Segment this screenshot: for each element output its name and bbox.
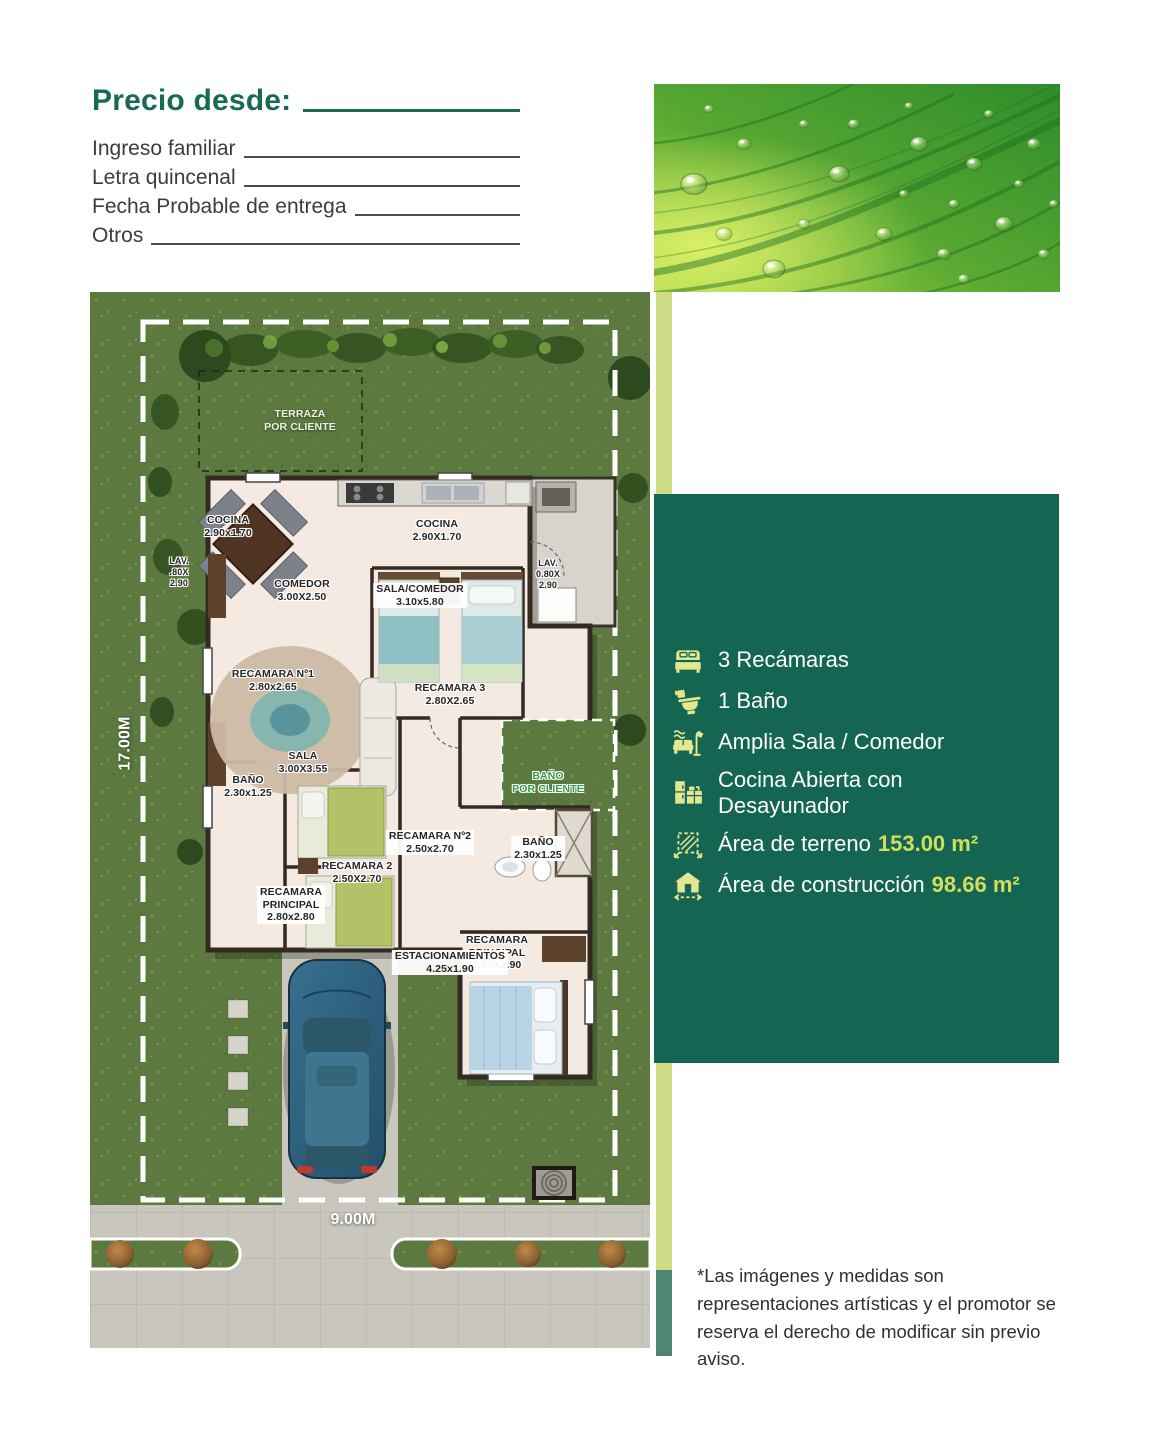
feature-label: Área de construcción (718, 872, 925, 897)
floorplan-label-recamara-2-n: RECAMARA Nº2 2.50x2.70 (386, 830, 474, 855)
floorplan-label-comedor: COMEDOR 3.00X2.50 (274, 578, 330, 603)
floorplan-label-dim-width: 9.00M (331, 1210, 376, 1229)
feature-construccion: Área de construcción98.66 m² (672, 869, 1049, 901)
field-blank-line (151, 243, 520, 245)
floorplan-label-recamara-1: RECAMARA Nº1 2.80x2.65 (232, 668, 314, 693)
construction-area-icon (672, 869, 704, 901)
flyer-page: Precio desde: Ingreso familiar Letra qui… (0, 0, 1152, 1440)
field-blank-line (355, 214, 520, 216)
feature-label: Cocina Abierta con Desayunador (718, 767, 903, 818)
land-area-icon (672, 828, 704, 860)
floorplan-label-lav-right: LAV. 0.80X 2.90 (536, 558, 560, 590)
price-header: Precio desde: Ingreso familiar Letra qui… (92, 84, 520, 248)
feature-sala-comedor: Amplia Sala / Comedor (672, 726, 1049, 758)
bed-icon (672, 644, 704, 676)
sofa-lamp-icon (672, 726, 704, 758)
floorplan-label-lav-left: LAV. .80X 2.90 (169, 556, 188, 588)
features-panel: 3 Recámaras 1 Baño (654, 494, 1059, 1063)
feature-list: 3 Recámaras 1 Baño (672, 644, 1049, 901)
form-field-letra-quincenal: Letra quincenal (92, 161, 520, 190)
field-label: Otros (92, 224, 143, 248)
floorplan-label-sala: SALA 3.00X3.55 (279, 750, 328, 775)
floorplan-label-sala-comedor: SALA/COMEDOR 3.10x5.80 (373, 583, 467, 608)
floorplan-label-terraza: TERRAZA POR CLIENTE (264, 408, 336, 433)
page-title: Precio desde: (92, 84, 291, 118)
feature-label: 1 Baño (718, 688, 788, 713)
field-label: Letra quincenal (92, 166, 236, 190)
floorplan-label-bano-right: BAÑO 2.30x1.25 (511, 836, 565, 861)
floorplan-label-recamara-ppal-left: RECAMARA PRINCIPAL 2.80x2.80 (257, 886, 325, 924)
leaf-photo (654, 84, 1060, 292)
form-field-otros: Otros (92, 219, 520, 248)
feature-value: 98.66 m² (932, 872, 1020, 897)
floorplan-label-bano-por-cliente: BAÑO POR CLIENTE (512, 770, 584, 795)
kitchen-icon (672, 777, 704, 809)
field-blank-line (244, 185, 520, 187)
accent-strip-teal (656, 1270, 672, 1356)
floorplan-label-cocina: COCINA 2.90X1.70 (413, 518, 462, 543)
feature-cocina: Cocina Abierta con Desayunador (672, 767, 1049, 819)
floorplan-labels: TERRAZA POR CLIENTECOCINA 2.90x1.70COCIN… (90, 292, 650, 1348)
floorplan-label-recamara-3: RECAMARA 3 2.80X2.65 (415, 682, 486, 707)
feature-terreno: Área de terreno153.00 m² (672, 828, 1049, 860)
field-blank-line (244, 156, 520, 158)
feature-bano: 1 Baño (672, 685, 1049, 717)
floorplan-label-recamara-2: RECAMARA 2 2.50X2.70 (322, 860, 393, 885)
price-blank-line (303, 109, 520, 112)
feature-value: 153.00 m² (878, 831, 978, 856)
disclaimer-text: *Las imágenes y medidas son representaci… (697, 1262, 1077, 1373)
price-form: Ingreso familiar Letra quincenal Fecha P… (92, 132, 520, 248)
floorplan: TERRAZA POR CLIENTECOCINA 2.90x1.70COCIN… (90, 292, 650, 1348)
form-field-ingreso-familiar: Ingreso familiar (92, 132, 520, 161)
toilet-icon (672, 685, 704, 717)
form-field-fecha-entrega: Fecha Probable de entrega (92, 190, 520, 219)
field-label: Fecha Probable de entrega (92, 195, 347, 219)
floorplan-label-estacionamientos: ESTACIONAMIENTOS 4.25x1.90 (392, 950, 508, 975)
feature-label: 3 Recámaras (718, 647, 849, 672)
floorplan-label-bano-left: BAÑO 2.30x1.25 (224, 774, 272, 799)
field-label: Ingreso familiar (92, 137, 236, 161)
floorplan-label-dim-depth: 17.00M (115, 717, 134, 771)
feature-label: Amplia Sala / Comedor (718, 729, 944, 754)
floorplan-label-cocina-left: COCINA 2.90x1.70 (204, 514, 252, 539)
feature-recamaras: 3 Recámaras (672, 644, 1049, 676)
feature-label: Área de terreno (718, 831, 871, 856)
